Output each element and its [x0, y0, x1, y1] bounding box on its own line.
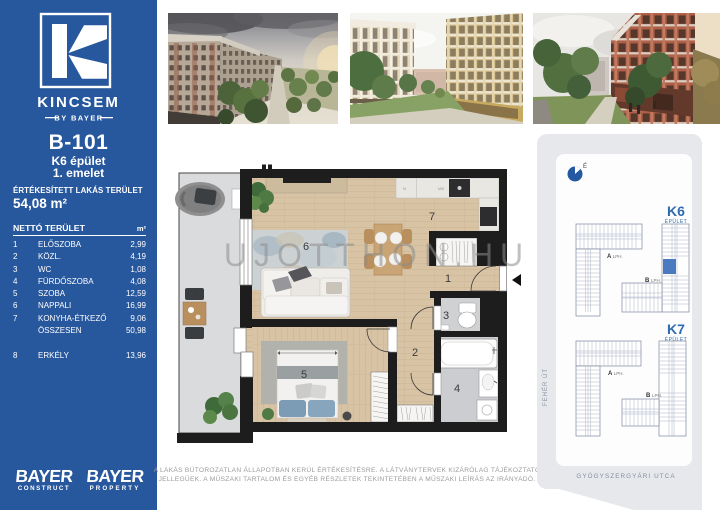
svg-text:MW: MW: [438, 187, 445, 191]
svg-text:É: É: [583, 163, 587, 170]
svg-text:1: 1: [445, 273, 451, 285]
svg-text:GYÓGYSZERGYÁRI UTCA: GYÓGYSZERGYÁRI UTCA: [576, 471, 675, 480]
svg-text:7: 7: [429, 211, 435, 223]
svg-text:FEHÉR ÚT: FEHÉR ÚT: [542, 368, 549, 406]
svg-text:KINCSEM: KINCSEM: [37, 94, 119, 111]
svg-text:UJOTTHON.HU: UJOTTHON.HU: [224, 237, 530, 273]
svg-text:3: 3: [443, 310, 449, 322]
svg-text:M: M: [403, 187, 406, 191]
svg-text:K7: K7: [667, 321, 685, 337]
svg-text:K6: K6: [667, 203, 685, 219]
svg-text:2: 2: [412, 347, 418, 359]
svg-text:8: 8: [193, 290, 199, 302]
svg-text:4: 4: [454, 383, 460, 395]
svg-text:5: 5: [301, 369, 307, 381]
svg-text:BY BAYER: BY BAYER: [54, 114, 103, 123]
